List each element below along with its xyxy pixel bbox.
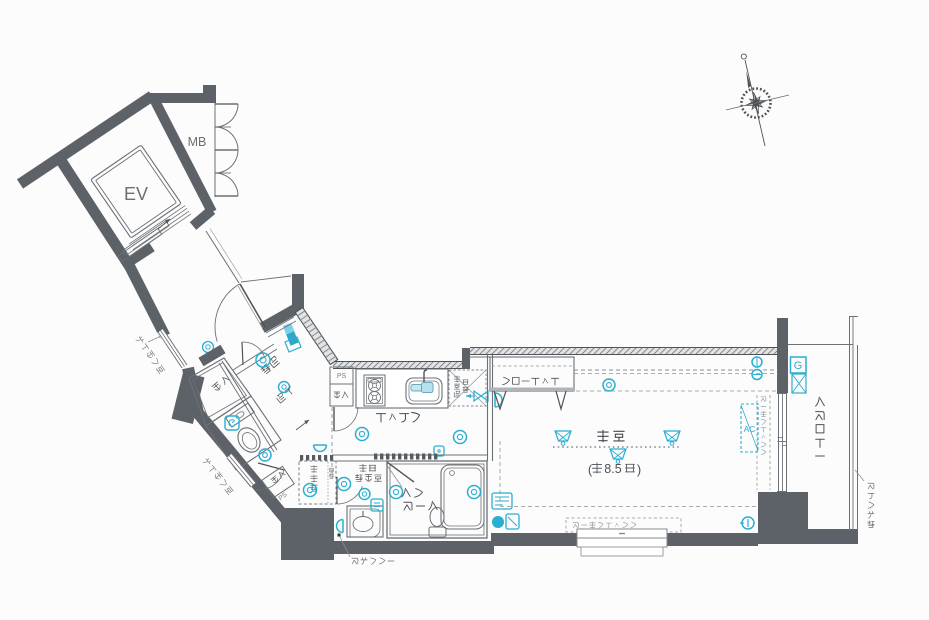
- svg-text:AC: AC: [744, 424, 756, 434]
- svg-text:): ): [637, 462, 641, 477]
- svg-text:MB: MB: [188, 135, 207, 149]
- svg-text:PS: PS: [337, 373, 347, 380]
- svg-text:EV: EV: [124, 184, 148, 204]
- svg-text:G: G: [794, 360, 803, 372]
- svg-text:8.5: 8.5: [604, 462, 621, 476]
